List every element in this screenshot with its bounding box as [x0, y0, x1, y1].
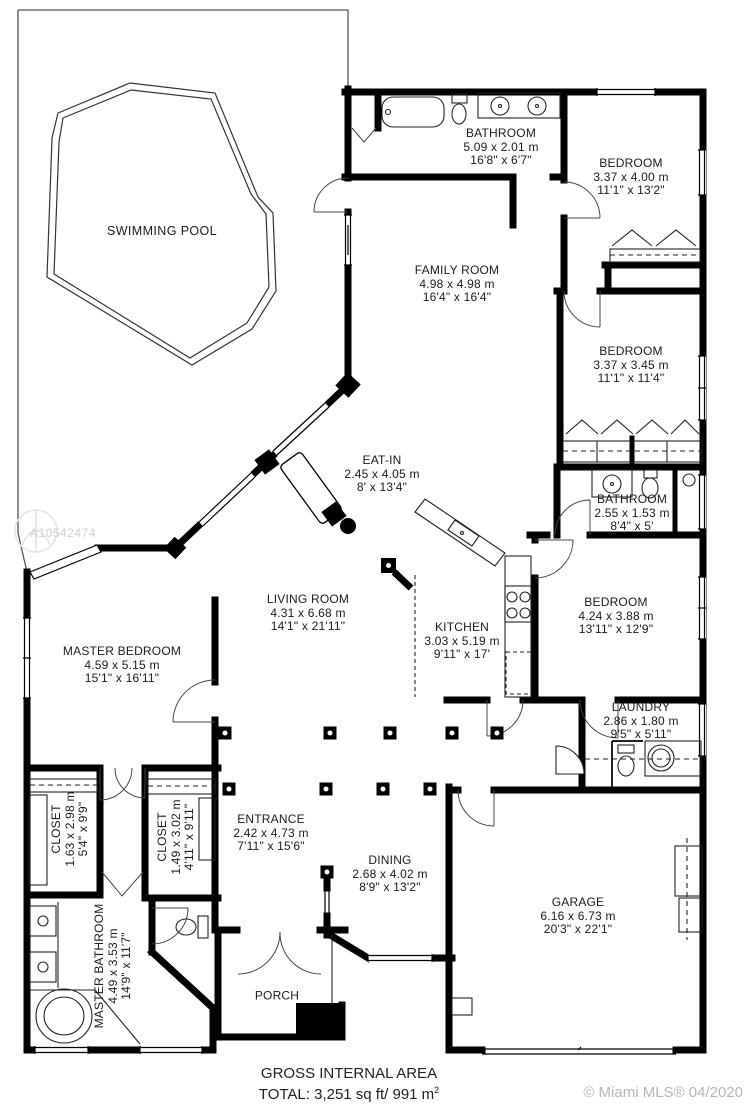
porch-column-block: [296, 1003, 342, 1039]
room-label-master-bathroom: MASTER BATHROOM 4.49 x 3.53 m 14'9" x 11…: [93, 904, 134, 1029]
kitchen-counter: [415, 499, 505, 566]
floorplan-page: SWIMMING POOL BATHROOM 5.09 x 2.01 m 16'…: [0, 0, 749, 1104]
toilet-tank: [644, 470, 657, 478]
room-label-bedroom-1: BEDROOM 3.37 x 4.00 m 11'1" x 13'2": [593, 157, 668, 198]
fridge: [506, 652, 531, 694]
room-label-bathroom-small: BATHROOM 2.55 x 1.53 m 8'4" x 5': [594, 493, 669, 534]
room-label-bedroom-3: BEDROOM 4.24 x 3.88 m 13'11" x 12'9": [578, 596, 653, 637]
ac-unit: [675, 846, 702, 896]
gross-area-title: GROSS INTERNAL AREA: [259, 1066, 439, 1082]
bathtub: [382, 97, 444, 127]
toilet-tank: [198, 916, 208, 938]
sink: [528, 97, 546, 115]
room-label-porch: PORCH: [255, 989, 299, 1003]
room-label-closet-left: CLOSET 1.63 x 2.98 m 5'4" x 9'9": [50, 791, 91, 866]
room-label-master-bedroom: MASTER BEDROOM 4.59 x 5.15 m 15'1" x 16'…: [63, 645, 181, 686]
room-label-family-room: FAMILY ROOM 4.98 x 4.98 m 16'4" x 16'4": [415, 264, 499, 305]
listing-id-watermark: A10542474: [30, 526, 96, 540]
sink: [30, 906, 56, 936]
sink: [30, 952, 56, 982]
gross-area-total: TOTAL: 3,251 sq ft/ 991 m2: [259, 1082, 439, 1103]
water-heater: [452, 998, 472, 1015]
sink: [603, 475, 621, 493]
room-label-closet-right: CLOSET 1.49 x 3.02 m 4'11" x 9'11": [156, 799, 197, 874]
gross-area-footer: GROSS INTERNAL AREA TOTAL: 3,251 sq ft/ …: [259, 1066, 439, 1103]
toilet: [452, 104, 466, 124]
room-label-eat-in: EAT-IN 2.45 x 4.05 m 8' x 13'4": [344, 454, 419, 495]
vanity-counter: [478, 93, 560, 118]
room-label-bathroom-top: BATHROOM 5.09 x 2.01 m 16'8" x 6'7": [463, 127, 538, 168]
room-label-living-room: LIVING ROOM 4.31 x 6.68 m 14'1" x 21'11": [267, 593, 349, 634]
mls-credit-watermark: © Miami MLS® 04/2020: [583, 1084, 743, 1101]
washer-dryer: [645, 741, 701, 776]
room-label-laundry: LAUNDRY 2.86 x 1.80 m 9'5" x 5'11": [603, 701, 678, 742]
room-label-kitchen: KITCHEN 3.03 x 5.19 m 9'11" x 17': [424, 621, 499, 662]
room-label-bedroom-2: BEDROOM 3.37 x 3.45 m 11'1" x 11'4": [593, 345, 668, 386]
toilet-tank: [618, 745, 634, 753]
water-heater: [683, 474, 695, 486]
room-label-dining: DINING 2.68 x 4.02 m 8'9" x 13'2": [352, 854, 427, 895]
room-label-swimming-pool: SWIMMING POOL: [107, 224, 217, 238]
room-label-garage: GARAGE 6.16 x 6.73 m 20'3" x 22'1": [540, 896, 615, 937]
sink: [491, 97, 509, 115]
room-label-entrance: ENTRANCE 2.42 x 4.73 m 7'11" x 15'6": [233, 813, 308, 854]
